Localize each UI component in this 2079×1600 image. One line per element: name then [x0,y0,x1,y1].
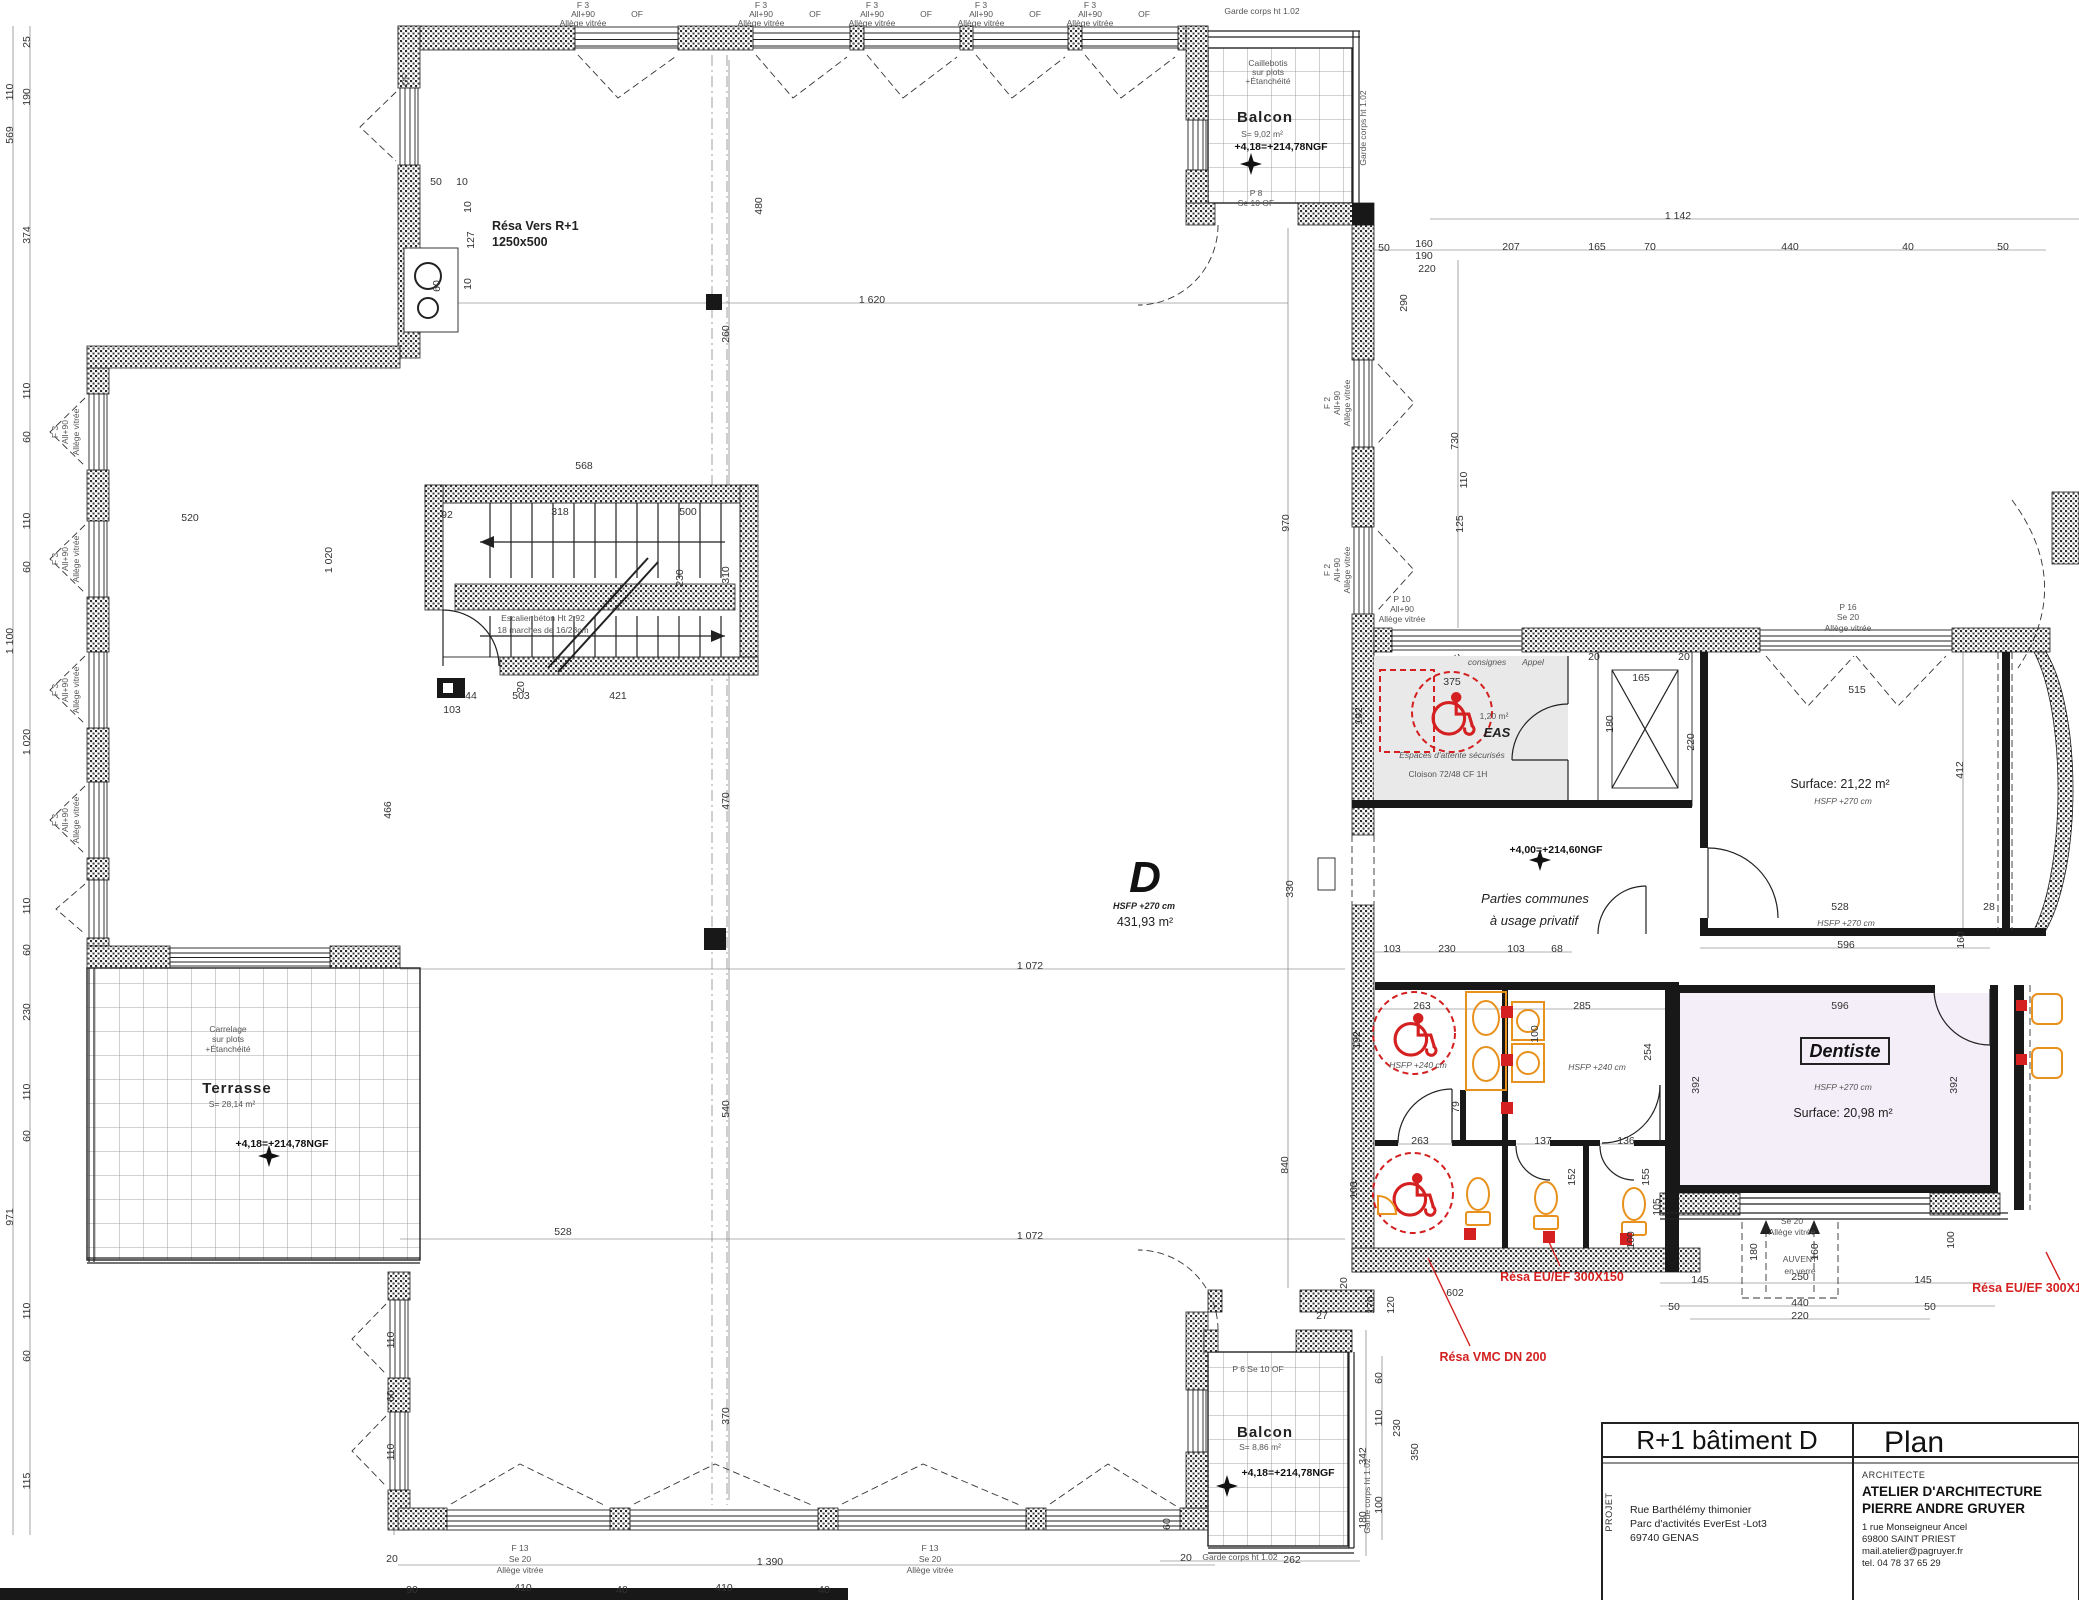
wall-below-eas [1352,800,1692,808]
dimension-label: 20 [1338,1277,1350,1289]
dimension-label: 520 [181,512,199,524]
dimension-label: en verre [1784,1266,1815,1276]
dimension-label: 503 [512,690,530,702]
dimension-label: Allège vitrée [1379,614,1426,624]
level-main: +4,00=+214,60NGF [1509,844,1603,856]
dimension-label: 110 [4,83,16,100]
dimension-label: F 3 [50,553,60,566]
parties-communes-line1: Parties communes [1481,891,1589,906]
dimension-label: 412 [1954,761,1966,779]
dimension-label: sur plots [212,1034,244,1044]
dimension-label: Allège vitrée [71,535,81,582]
dimension-label: 40 [1902,241,1914,253]
dimension-label: 50 [1997,241,2009,253]
dimension-label: 190 [1415,250,1433,262]
dimension-label: 10 [462,278,474,290]
annotation-layer: 1 6201 142501601902202071657044040502907… [4,0,2009,1596]
dimension-label: Allège vitrée [71,408,81,455]
hall-hsfp: HSFP +270 cm [1113,901,1175,911]
dimension-label: P 10 [1393,594,1411,604]
dimension-label: 392 [1948,1076,1960,1094]
dimension-label: 230 [21,1003,33,1021]
architecte-name1: ATELIER D'ARCHITECTURE [1862,1484,2042,1499]
dimension-label: 25 [21,36,33,48]
dentiste-surface: Surface: 20,98 m² [1793,1106,1892,1120]
stair-note-1: Escalier béton Ht 2,92 [501,613,585,623]
dimension-label: 470 [720,792,732,810]
dimension-label: 60 [385,1390,397,1402]
dimension-label: 160 [1955,931,1967,949]
dimension-label: 392 [1690,1076,1702,1094]
dimension-label: Se 20 [1781,1216,1803,1226]
dimension-label: 730 [1449,432,1461,450]
dimension-label: 100 [1373,1496,1385,1514]
resa-vers-r1-line2: 1250x500 [492,235,548,249]
architecte-line1: 1 rue Monseigneur Ancel [1862,1522,1967,1533]
dimension-label: 60 [21,431,33,443]
dimension-label: 220 [1685,733,1697,751]
dimension-label: HSFP +240 cm [1568,1062,1626,1072]
balcon-top-name: Balcon [1237,109,1293,126]
projet-line1: Rue Barthélémy thimonier [1630,1504,1752,1516]
dentiste-room [1660,985,2008,1219]
dimension-label: 528 [554,1226,572,1238]
dimension-label: OF [400,74,410,86]
dimension-label: P 6 Se 10 OF [1232,1364,1283,1374]
dimension-label: 125 [1454,515,1466,533]
dimension-label: 192 [1353,707,1365,725]
room-2122 [1700,500,2046,936]
dimension-label: 466 [382,801,394,819]
dimension-label: 40 [616,1584,628,1596]
dimension-label: 1 142 [1665,210,1691,222]
dimension-label: 110 [21,897,33,914]
dimension-label: 350 [1409,1443,1421,1461]
dimension-label: Allège vitrée [907,1565,954,1575]
architecte-line4: tel. 04 78 37 65 29 [1862,1558,1941,1569]
dimension-label: 230 [1438,943,1456,955]
dimension-label: Carrelage [209,1024,247,1034]
dimension-label: Allège vitrée [1067,18,1114,28]
balcon-bottom-level: +4,18=+214,78NGF [1241,1467,1335,1479]
balcon-bottom-name: Balcon [1237,1424,1293,1441]
dimension-label: Se 20 [1837,612,1859,622]
dimension-label: Se 20 [509,1554,531,1564]
dimension-label: 60 [21,561,33,573]
eas-consignes: consignes [1468,657,1507,667]
dimension-label: 92 [441,509,453,521]
dimension-label: 180 [1748,1243,1760,1261]
dimension-label: 136 [1617,1135,1635,1147]
dimension-label: OF [920,9,932,19]
sheet-title: R+1 bâtiment D [1636,1425,1817,1455]
dimension-label: 190 [21,88,33,106]
dimension-label: OF [1138,9,1150,19]
dimension-label: Allège vitrée [497,1565,544,1575]
dimension-label: 1 020 [323,547,335,573]
dimension-label: 500 [679,506,697,518]
dimension-label: AUVENT [1783,1254,1817,1264]
dimension-label: 137 [1534,1135,1552,1147]
dimension-label: 79 [1450,1101,1462,1113]
dimension-label: 10 [462,201,474,213]
dimension-label: +Étanchéité [205,1044,250,1054]
dimension-label: 100 [1625,1231,1637,1249]
dimension-label: 421 [609,690,627,702]
dimension-label: 1 072 [1017,960,1043,972]
dimension-label: P 16 [1839,602,1857,612]
dimension-label: Allège vitrée [71,666,81,713]
resa-vers-r1-line1: Résa Vers R+1 [492,219,579,233]
balcon-top-area: S= 9,02 m² [1241,129,1283,139]
dimension-label: 127 [465,231,477,249]
dimension-label: 100 [1529,1025,1541,1043]
electrical-box [1318,858,1335,890]
dimension-label: 103 [1507,943,1525,955]
dimension-label: 180 [1604,715,1616,733]
dimension-label: 60 [431,280,443,292]
dimension-label: 230 [1391,1419,1403,1437]
dimension-label: 50 [1924,1301,1936,1313]
dimension-label: 970 [1280,514,1292,532]
dimension-label: Garde corps ht 1.02 [1202,1552,1277,1562]
floor-plan-svg: D HSFP +270 cm 431,93 m² Parties commune… [0,0,2079,1600]
dimension-label: 290 [1398,294,1410,312]
sheet-type: Plan [1884,1426,1944,1459]
dimension-lines [13,26,2079,1591]
dimension-label: 569 [4,126,16,144]
dimension-label: 60 [21,1130,33,1142]
dimension-label: 155 [1640,1168,1652,1186]
dimension-label: 263 [1411,1135,1429,1147]
dimension-label: 110 [21,1302,33,1319]
dimension-label: Garde corps ht 1.02 [1362,1458,1372,1533]
dimension-label: Allège vitrée [958,18,1005,28]
dimension-label: Se 20 [919,1554,941,1564]
dimension-label: 220 [1791,1310,1809,1322]
dimension-label: 60 [1373,1372,1385,1384]
dimension-label: 374 [21,226,33,244]
projet-label: PROJET [1604,1492,1614,1531]
dimension-label: 110 [385,1331,397,1348]
terrasse-name: Terrasse [202,1080,271,1097]
dimension-label: All+90 [1332,558,1342,582]
dimension-label: 260 [720,325,732,343]
dimension-label: F 2 [1322,397,1332,410]
dimension-label: 68 [1551,943,1563,955]
dimension-label: 100 [1348,1181,1360,1199]
dimension-label: 254 [1642,1043,1654,1061]
dimension-label: Garde corps ht 1.02 [1358,90,1368,165]
dimension-label: 145 [1914,1274,1932,1286]
terrasse [87,968,420,1263]
eas-appel: Appel [1521,657,1545,667]
eas-area: 1,20 m² [1480,711,1509,721]
dimension-label: 165 [1588,241,1606,253]
dimension-label: Allège vitrée [560,18,607,28]
eas-room [1374,656,1568,804]
room2122-hsfp: HSFP +270 cm [1814,796,1872,806]
room2122-surface: Surface: 21,22 m² [1790,777,1889,791]
dimension-label: OF [1029,9,1041,19]
dimension-label: 10 [456,176,468,188]
dimension-label: 515 [1848,684,1866,696]
dimension-label: All+90 [1390,604,1414,614]
dimension-label: 160 [1415,238,1433,250]
hall-letter: D [1129,853,1161,902]
dimension-label: 370 [720,1407,732,1425]
dimension-label: 1 620 [859,294,885,306]
dimension-label: 103 [443,704,461,716]
dimension-label: 20 [386,1553,398,1565]
dimension-label: 110 [1458,471,1470,488]
dimension-label: 207 [1502,241,1520,253]
architecte-line3: mail.atelier@pagruyer.fr [1862,1546,1963,1557]
dimension-label: 310 [720,566,732,584]
right-edge-room [2014,985,2062,1210]
dimension-label: 103 [1383,943,1401,955]
dimension-label: Allège vitrée [738,18,785,28]
dimension-label: 28 [1983,901,1995,913]
resa-vmc-label: Résa VMC DN 200 [1440,1350,1547,1364]
resa-eu-ef-label: Résa EU/EF 300X150 [1500,1270,1624,1284]
dentiste-name: Dentiste [1809,1041,1880,1061]
dimension-label: 440 [1791,1297,1809,1309]
dimension-label: OF [631,9,643,19]
dimension-label: F 13 [511,1543,528,1553]
dimension-label: 100 [1945,1231,1957,1249]
dimension-label: 120 [1385,1296,1397,1314]
dimension-label: 50 [1378,242,1390,254]
dimension-label: 263 [1413,1000,1431,1012]
dimension-label: Garde corps ht 1.02 [1224,6,1299,16]
eas-note: Espaces d'attente sécurisés [1399,750,1505,760]
resa-eu-right-label: Résa EU/EF 300X150 [1972,1281,2079,1295]
dimension-label: 192 [1351,1031,1363,1049]
architecte-label: ARCHITECTE [1862,1470,1926,1480]
dimension-label: Allège vitrée [1769,1227,1816,1237]
dimension-label: 110 [21,512,33,529]
dimension-label: 262 [1283,1554,1301,1566]
architecte-name2: PIERRE ANDRE GRUYER [1862,1501,2025,1516]
dimension-label: 840 [1279,1156,1291,1174]
dentiste-hsfp: HSFP +270 cm [1814,1082,1872,1092]
dimension-label: HSFP +270 cm [1817,918,1875,928]
dimension-label: 60 [21,1350,33,1362]
dimension-label: 1 100 [4,628,16,654]
dimension-label: 20 [1678,651,1690,663]
dimension-label: 1 072 [1017,1230,1043,1242]
dimension-label: F 3 [50,684,60,697]
projet-line3: 69740 GENAS [1630,1532,1699,1544]
dimension-label: 596 [1831,1000,1849,1012]
columns [704,294,1335,950]
dimension-label: Allège vitrée [1342,379,1352,426]
dimension-label: 1 020 [21,729,33,755]
dimension-label: 20 [1588,651,1600,663]
dimension-label: Allège vitrée [1342,546,1352,593]
dimension-label: 27 [1316,1310,1328,1322]
dimension-label: P 8 [1250,188,1263,198]
dimension-label: 480 [753,197,765,215]
dimension-label: 1 390 [757,1556,783,1568]
dimension-label: 165 [1632,672,1650,684]
dimension-label: All+90 [60,547,70,571]
projet-line2: Parc d'activités EverEst -Lot3 [1630,1518,1767,1530]
dimension-label: 60 [1161,1518,1173,1530]
dimension-label: All+90 [60,420,70,444]
eas-name: EAS [1484,725,1511,740]
dimension-label: 285 [1573,1000,1591,1012]
sanitary-block [1373,982,1679,1272]
dimension-label: +Étanchéité [1245,76,1290,86]
dimension-label: Allège vitrée [1825,623,1872,633]
stair-note-2: 18 marches de 16/28cm [497,625,588,635]
dimension-label: 60 [21,944,33,956]
dimension-label: 110 [21,1083,33,1100]
dimension-label: 318 [551,506,569,518]
dimension-label: 540 [720,1100,732,1118]
dimension-label: 330 [1284,880,1296,898]
dimension-label: 528 [1831,901,1849,913]
dimension-label: 115 [21,1472,33,1489]
dimension-label: 220 [1418,263,1436,275]
dimension-label: 110 [1373,1409,1385,1426]
dimension-label: 44 [465,690,477,702]
dimension-label: 410 [514,1582,532,1594]
dimension-label: 410 [715,1582,733,1594]
balcon-top-level: +4,18=+214,78NGF [1234,141,1328,153]
title-block: R+1 bâtiment D Plan PROJET Rue Barthélém… [1602,1423,2079,1600]
dimension-label: 596 [1837,939,1855,951]
terrasse-level: +4,18=+214,78NGF [235,1138,329,1150]
dimension-label: 152 [1566,1168,1578,1186]
dimension-label: F 13 [921,1543,938,1553]
dimension-label: 602 [1446,1287,1464,1299]
dimension-label: 70 [1644,241,1656,253]
architecte-line2: 69800 SAINT PRIEST [1862,1534,1956,1545]
dimension-label: 110 [21,382,33,399]
dimension-label: 50 [430,176,442,188]
dimension-label: 971 [4,1208,16,1226]
dimension-label: 40 [818,1584,830,1596]
floor-plan-page: D HSFP +270 cm 431,93 m² Parties commune… [0,0,2079,1600]
dimension-label: 230 [674,569,686,587]
dimension-label: All+90 [1332,391,1342,415]
dimension-label: OF [809,9,821,19]
dimension-label: 105 [1651,1198,1663,1216]
dimension-label: 50 [1668,1301,1680,1313]
dimension-label: 440 [1781,241,1799,253]
eas-cloison: Cloison 72/48 CF 1H [1409,769,1488,779]
dimension-label: 20 [1180,1552,1192,1564]
dimension-label: 110 [385,1443,397,1460]
dimension-label: 375 [1443,676,1461,688]
dimension-label: 90 [406,1584,418,1596]
hall-area: 431,93 m² [1117,915,1173,929]
dimension-label: 170 [1365,1296,1377,1314]
dimension-label: F 3 [50,426,60,439]
dimension-label: HSFP +240 cm [1389,1060,1447,1070]
terrasse-area: S= 28,14 m² [209,1099,256,1109]
dimension-label: All+90 [60,808,70,832]
dimension-label: F 3 [50,814,60,827]
dimension-label: 568 [575,460,593,472]
balcon-bottom-area: S= 8,86 m² [1239,1442,1281,1452]
dimension-label: Allège vitrée [71,796,81,843]
dimension-label: Se 10 OF [1238,198,1274,208]
dimension-label: Allège vitrée [849,18,896,28]
dimension-label: F 2 [1322,564,1332,577]
dimension-label: All+90 [60,678,70,702]
staircase [425,485,758,698]
dimension-label: 145 [1691,1274,1709,1286]
parties-communes-line2: à usage privatif [1490,913,1580,928]
